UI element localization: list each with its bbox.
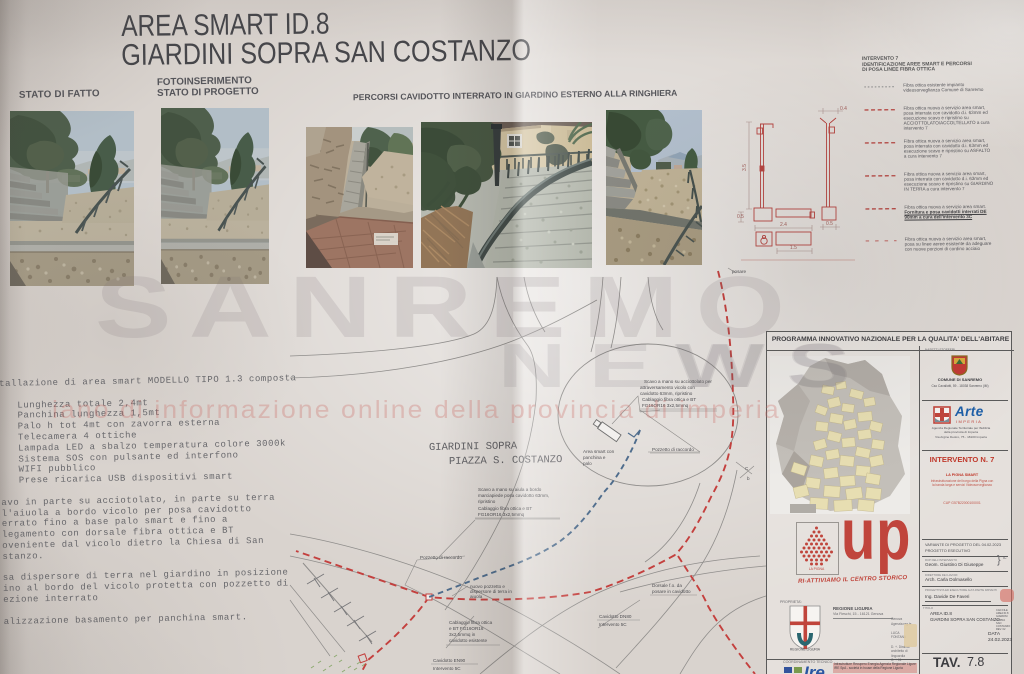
svg-text:LA PIGNA: LA PIGNA — [809, 567, 825, 571]
svg-text:cavidotto 63mm, ripristino: cavidotto 63mm, ripristino — [640, 391, 693, 396]
svg-text:Cablaggio fibra ottica e BT: Cablaggio fibra ottica e BT — [478, 506, 532, 511]
svg-text:Intervento 5C: Intervento 5C — [433, 666, 461, 671]
svg-text:PIAZZA S. COSTANZO: PIAZZA S. COSTANZO — [449, 454, 563, 468]
svg-text:3x2,5mmq in: 3x2,5mmq in — [449, 632, 476, 637]
svg-text:posare: posare — [732, 269, 746, 274]
svg-text:0.5: 0.5 — [737, 214, 744, 220]
svg-text:b: b — [747, 476, 750, 481]
svg-text:attraversamento vicolo con: attraversamento vicolo con — [640, 385, 695, 390]
svg-text:3.5: 3.5 — [742, 164, 748, 171]
svg-text:0.4: 0.4 — [840, 106, 847, 112]
svg-text:Cablaggio fibra ottica e BT: Cablaggio fibra ottica e BT — [642, 397, 696, 402]
svg-text:1.5: 1.5 — [790, 245, 797, 251]
svg-text:Scavo a mano su acciottolato p: Scavo a mano su acciottolato per — [644, 379, 712, 384]
svg-text:cavidotto esistente: cavidotto esistente — [449, 638, 487, 643]
svg-text:Scavo a mano su aiula a bordo: Scavo a mano su aiula a bordo — [478, 487, 542, 492]
svg-text:palo: palo — [583, 461, 592, 466]
svg-text:Pozzetto di raccordo: Pozzetto di raccordo — [652, 447, 694, 452]
svg-text:0.5: 0.5 — [826, 221, 833, 227]
svg-text:Cavidotto DN80: Cavidotto DN80 — [599, 614, 632, 619]
svg-text:Cavidotto EN90: Cavidotto EN90 — [433, 658, 466, 663]
svg-text:FG16OR16 3x2,5mmq: FG16OR16 3x2,5mmq — [478, 512, 525, 517]
svg-text:Area smart con: Area smart con — [583, 449, 615, 454]
svg-text:Intervento 5C: Intervento 5C — [599, 622, 627, 627]
svg-text:Dorsale f.o. da: Dorsale f.o. da — [652, 583, 682, 588]
svg-text:marciapiede posa cavidotto 63m: marciapiede posa cavidotto 63mm, — [478, 493, 549, 498]
svg-text:REGIONE LIGURIA: REGIONE LIGURIA — [790, 648, 821, 652]
svg-text:C: C — [745, 466, 749, 471]
svg-text:Cablaggio fibra ottica: Cablaggio fibra ottica — [449, 620, 493, 625]
svg-text:FG16OR16 3x2,5mmq: FG16OR16 3x2,5mmq — [642, 403, 689, 408]
svg-text:2.4: 2.4 — [780, 222, 787, 228]
svg-text:e BT FG16OR16: e BT FG16OR16 — [449, 626, 484, 631]
svg-text:posare in cavidotto: posare in cavidotto — [652, 589, 691, 594]
svg-text:GIARDINI SOPRA: GIARDINI SOPRA — [429, 440, 518, 454]
svg-text:panchina e: panchina e — [583, 455, 606, 460]
svg-text:aiuola: aiuola — [470, 594, 483, 599]
svg-text:Pozzetto di raccordo: Pozzetto di raccordo — [420, 555, 462, 560]
svg-text:ripristino: ripristino — [478, 499, 496, 504]
